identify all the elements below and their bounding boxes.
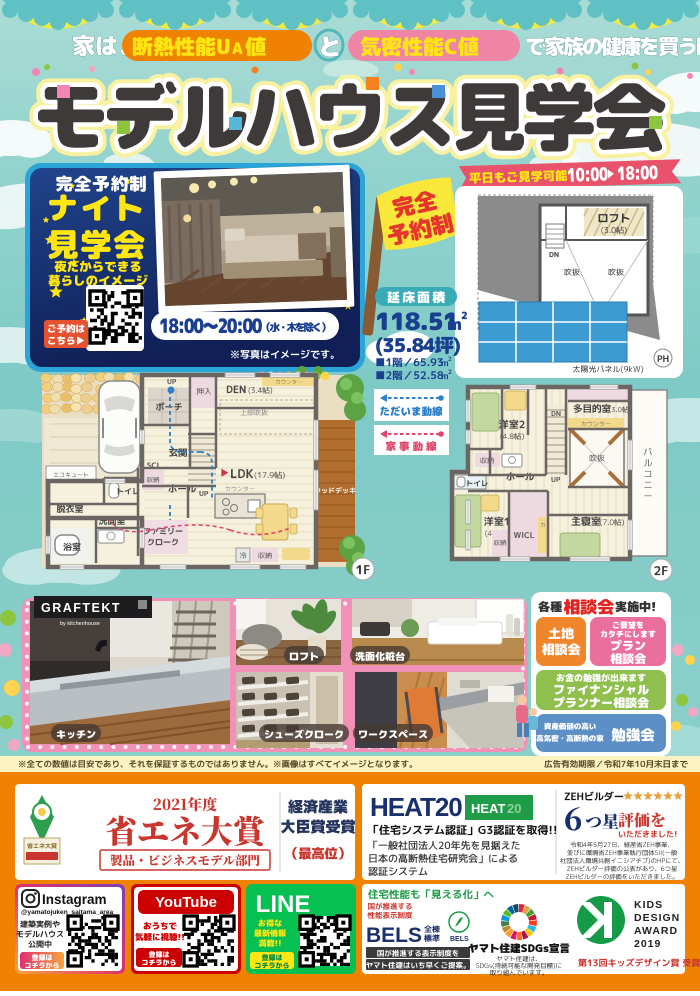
svg-text:BELS: BELS [366,924,422,947]
svg-text:HEAT20: HEAT20 [370,792,462,822]
svg-text:LINE: LINE [256,891,311,918]
svg-text:20: 20 [507,801,521,816]
svg-text:YouTube: YouTube [155,894,217,911]
svg-text:KIDS: KIDS [634,899,663,911]
svg-text:GRAFTEKT: GRAFTEKT [41,601,121,615]
svg-text:HEAT: HEAT [471,801,505,816]
svg-text:DESIGN: DESIGN [634,912,680,924]
svg-text:2019: 2019 [634,938,661,950]
svg-text:Instagram: Instagram [42,892,107,907]
svg-text:by kitchenhouse: by kitchenhouse [60,621,100,627]
svg-text:BELS: BELS [450,936,469,943]
svg-text:AWARD: AWARD [634,925,678,937]
